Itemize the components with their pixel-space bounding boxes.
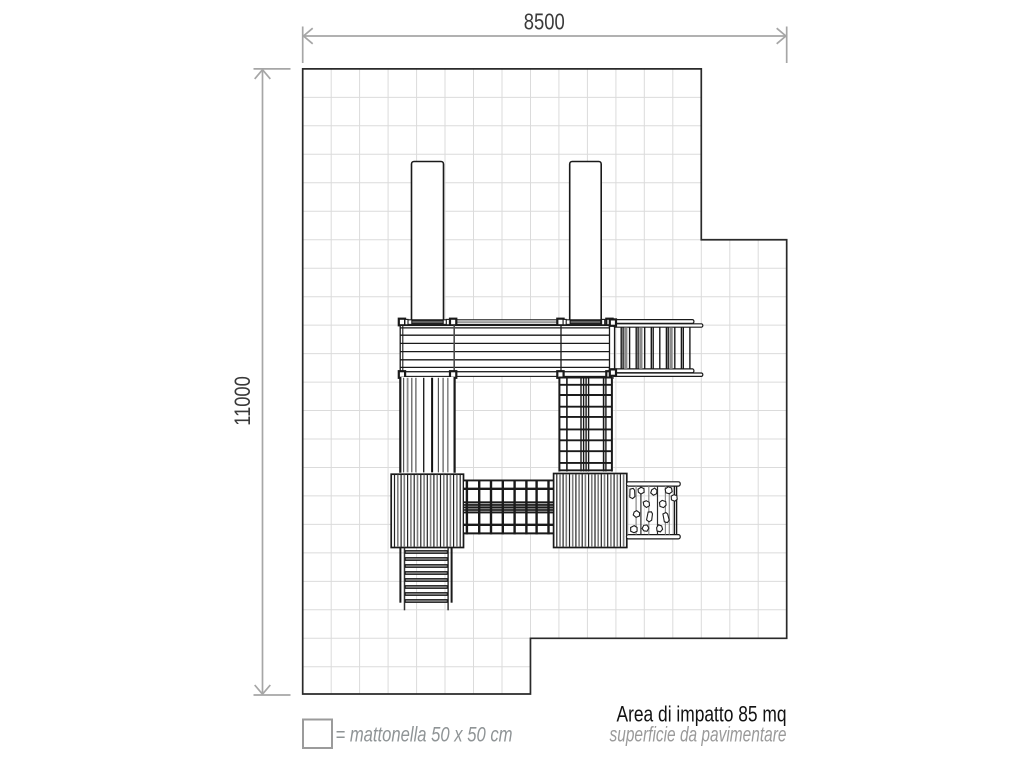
svg-text:superficie da pavimentare: superficie da pavimentare: [610, 723, 787, 747]
svg-text:8500: 8500: [524, 8, 565, 34]
svg-text:= mattonella 50 x 50 cm: = mattonella 50 x 50 cm: [336, 723, 513, 747]
svg-text:11000: 11000: [230, 376, 255, 426]
